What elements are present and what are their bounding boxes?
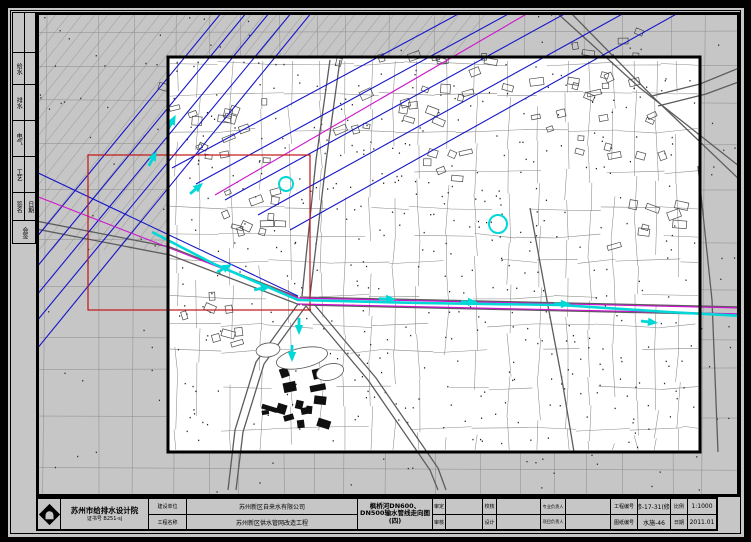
strip-row	[13, 13, 35, 53]
drawing-no-value: 水施-46	[637, 514, 670, 529]
project-label: 工程名称	[148, 514, 186, 529]
dense-building-block	[306, 406, 313, 415]
strip-label: 给水	[15, 63, 21, 75]
discipline-lead-signature	[565, 499, 610, 514]
date-value: 2011.01	[687, 514, 716, 529]
strip-sign-row: 签名 日期	[13, 193, 35, 221]
logo-cell	[38, 499, 60, 529]
title-block: 苏州市给排水设计院 证书号 B251-sj 建设单位 工程名称 苏州新区自来水有…	[36, 497, 718, 531]
strip-row: 排水	[13, 85, 35, 121]
designed-signature	[496, 514, 540, 529]
reviewed-signature	[445, 514, 482, 529]
institute-name: 苏州市给排水设计院	[71, 506, 139, 515]
owner-value: 苏州新区自来水有限公司	[186, 499, 357, 514]
drawing-canvas	[0, 0, 751, 542]
owner-label: 建设单位	[148, 499, 186, 514]
countersign-label: 会签	[21, 227, 27, 239]
drawing-title-cell: 枫桥河DN600、DN500输水管线走向图(四)	[357, 499, 432, 529]
dense-building-block	[297, 420, 305, 429]
scale-value: 1:1000	[687, 499, 716, 514]
strip-row: 给水	[13, 53, 35, 85]
reviewed-label: 审核	[432, 514, 445, 529]
dense-building-block	[314, 395, 327, 405]
drawing-no-label: 图纸编号	[610, 514, 637, 529]
checked-label: 校核	[482, 499, 496, 514]
approved-signature	[445, 499, 482, 514]
keymap-background	[168, 57, 700, 452]
institute-logo-icon	[38, 503, 59, 524]
strip-bottom-row: 会签	[13, 221, 35, 244]
drawing-title: 枫桥河DN600、DN500输水管线走向图(四)	[358, 503, 432, 525]
project-value: 苏州新区供水管网改造工程	[186, 514, 357, 529]
cad-drawing-screenshot: { "colors":{"paper":"#c6c6c6","white":"#…	[0, 0, 751, 542]
checked-signature	[496, 499, 540, 514]
project-no-label: 工程编号	[610, 499, 637, 514]
designed-label: 设计	[482, 514, 496, 529]
strip-label: 工艺	[15, 169, 21, 181]
project-no-value: 修-17-31(修)	[637, 499, 670, 514]
signature-strip: 给水 排水 电气 工艺 签名 日期 会签	[12, 12, 36, 244]
scale-label: 比例	[670, 499, 687, 514]
discipline-lead-label: 专业负责人	[540, 499, 565, 514]
date-label: 日期	[27, 201, 33, 213]
approved-label: 审定	[432, 499, 445, 514]
strip-row: 电气	[13, 121, 35, 157]
strip-row: 工艺	[13, 157, 35, 193]
date-label: 日期	[670, 514, 687, 529]
project-lead-signature	[565, 514, 610, 529]
institute-cell: 苏州市给排水设计院 证书号 B251-sj	[60, 499, 148, 529]
institute-cert: 证书号 B251-sj	[87, 515, 122, 522]
strip-label: 电气	[15, 133, 21, 145]
project-lead-label: 项目负责人	[540, 514, 565, 529]
strip-label: 排水	[15, 97, 21, 109]
sign-label: 签名	[15, 201, 21, 213]
